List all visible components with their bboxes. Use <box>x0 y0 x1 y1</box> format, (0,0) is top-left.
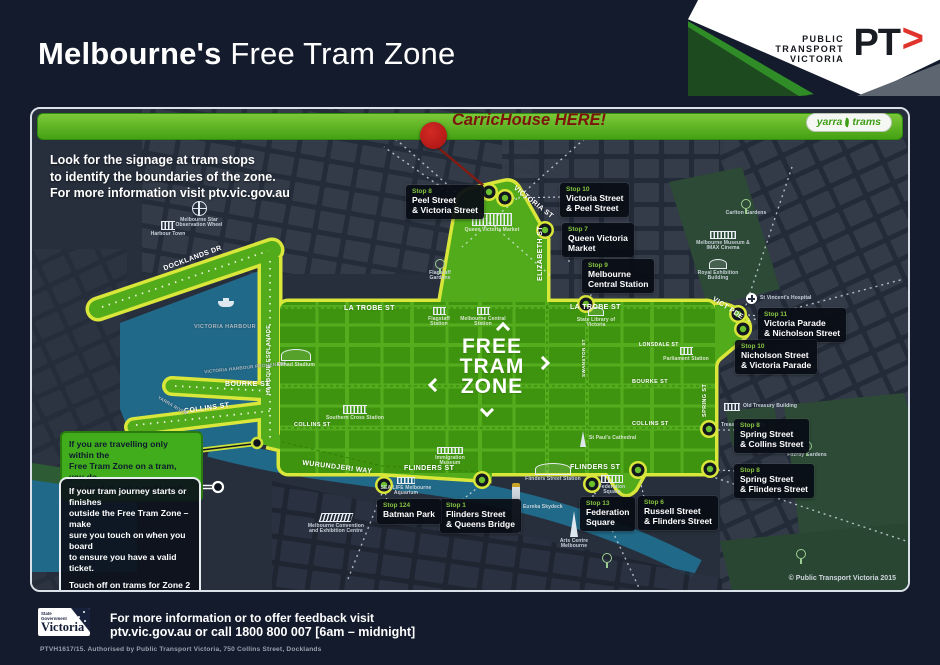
landmark-southern-cross: Southern Cross Station <box>324 405 386 421</box>
map-copyright: © Public Transport Victoria 2015 <box>789 575 896 582</box>
emblem-free: FREE <box>440 337 544 357</box>
stop-label-peel-victoria: Stop 8Peel Street& Victoria Street <box>406 185 484 219</box>
trams-text: trams <box>852 116 881 128</box>
landmark-st-vincents: St Vincent's Hospital <box>746 293 816 304</box>
landmark-melbourne-museum: Melbourne Museum & IMAX Cinema <box>692 231 754 252</box>
yarra-text: yarra <box>817 116 843 128</box>
stop-label-federation-square: Stop 13FederationSquare <box>580 497 635 531</box>
landmark-parliament-station: Parliament Station <box>662 347 710 362</box>
label-victoria-harbour: VICTORIA HARBOUR <box>194 324 256 330</box>
stadium-icon <box>281 349 311 361</box>
landmark-state-library: State Library of Victoria <box>570 307 622 329</box>
tree-icon <box>741 199 751 209</box>
landmark-royal-exhibition: Royal Exhibition Building <box>688 259 748 282</box>
landmark-sealife: SEA LIFE Melbourne Aquarium <box>378 477 434 497</box>
landmark-old-treasury: Old Treasury Building <box>724 403 802 411</box>
stop-label-nicholson-victoria: Stop 10Nicholson Street& Victoria Parade <box>735 340 817 374</box>
landmark-federation-square: Federation Square <box>590 475 634 496</box>
aquarium-icon <box>397 477 415 484</box>
poster-page: Melbourne's Free Tram Zone PUBLIC TRANSP… <box>0 0 940 665</box>
landmark-carlton-gardens: Carlton Gardens <box>720 199 772 216</box>
landmark-flagstaff-gardens: Flagstaff Gardens <box>418 259 462 282</box>
ptv-wordmark: PUBLIC TRANSPORT VICTORIA <box>775 34 844 64</box>
hospital-cross-icon <box>746 293 757 304</box>
landmark-st-pauls: St Paul's Cathedral <box>580 431 644 447</box>
ptv-word-victoria: VICTORIA <box>775 54 844 64</box>
stop-label-flinders-queens: Stop 1Flinders Street& Queens Bridge <box>440 499 521 533</box>
ptv-word-public: PUBLIC <box>775 34 844 44</box>
ptv-pt-logo: PT <box>853 22 900 65</box>
footer-contact-line: ptv.vic.gov.au or call 1800 800 007 [6am… <box>110 625 415 639</box>
building-icon <box>724 403 740 411</box>
page-title: Melbourne's Free Tram Zone <box>38 36 455 72</box>
note-line-1: Look for the signage at tram stops <box>50 152 290 169</box>
footer-info-line: For more information or to offer feedbac… <box>110 611 374 625</box>
ptv-logo-block: PUBLIC TRANSPORT VICTORIA PT > <box>688 0 940 96</box>
street-collins-mid: COLLINS ST <box>294 422 331 428</box>
street-elizabeth-st: ELIZABETH ST <box>537 226 544 281</box>
ferris-wheel-icon <box>192 201 207 216</box>
cathedral-icon <box>580 431 586 447</box>
stop-label-melbourne-central: Stop 9MelbourneCentral Station <box>582 259 654 293</box>
stop-label-victoria-nicholson: Stop 11Victoria Parade& Nicholson Street <box>758 308 846 342</box>
park-tree-south <box>602 553 612 563</box>
title-light: Free Tram Zone <box>222 36 456 71</box>
ptv-chevron-icon: > <box>902 17 924 62</box>
fed-square-icon <box>601 475 623 483</box>
exhibition-icon <box>709 259 727 269</box>
touch-on-paragraph: If your tram journey starts or finishes … <box>69 486 191 574</box>
museum-icon <box>710 231 736 239</box>
emblem-zone: ZONE <box>440 377 544 397</box>
stop-label-victoria-peel: Stop 10Victoria Street& Peel Street <box>560 183 629 217</box>
station-icon <box>477 307 490 315</box>
emblem-tram: TRAM <box>440 357 544 377</box>
library-icon <box>588 307 604 316</box>
museum-icon <box>437 447 463 454</box>
note-line-2: to identify the boundaries of the zone. <box>50 169 290 186</box>
tree-icon <box>602 553 612 563</box>
stop-label-spring-flinders: Stop 8Spring Street& Flinders Street <box>734 464 814 498</box>
landmark-flagstaff-station: Flagstaff Station <box>420 307 458 328</box>
landmark-flinders-station: Flinders Street Station <box>524 463 582 482</box>
touch-off-paragraph: Touch off on trams for Zone 2 only trips… <box>69 580 191 592</box>
free-tram-zone-emblem: FREE TRAM ZONE <box>440 337 544 397</box>
logo-victoria: Victoria <box>41 620 84 635</box>
convention-centre-icon <box>319 513 354 522</box>
stop-label-russell-flinders: Stop 6Russell Street& Flinders Street <box>638 496 718 530</box>
carrichouse-label: CarricHouse HERE! <box>452 111 606 130</box>
station-icon <box>680 347 693 355</box>
station-icon <box>343 405 367 414</box>
stop-label-spring-collins: Stop 8Spring Street& Collins Street <box>734 419 809 453</box>
victoria-government-logo: State Government Victoria <box>38 608 90 636</box>
touch-on-infobox: If your tram journey starts or finishes … <box>59 477 201 592</box>
street-spring-st: SPRING ST <box>702 384 708 417</box>
harbour-ship <box>218 301 234 307</box>
tree-icon <box>435 259 445 269</box>
stop-label-batman-park: Stop 124Batman Park <box>377 499 441 524</box>
footer-fine-print: PTVH1617/15. Authorised by Public Transp… <box>40 646 322 653</box>
note-line-3: For more information visit ptv.vic.gov.a… <box>50 185 290 202</box>
ship-icon <box>218 301 234 307</box>
carrichouse-marker-icon <box>420 122 447 149</box>
ptv-word-transport: TRANSPORT <box>775 44 844 54</box>
station-icon <box>433 307 446 315</box>
landmark-immigration-museum: Immigration Museum <box>424 447 476 467</box>
landmark-etihad-stadium: Etihad Stadium <box>266 349 326 368</box>
logo-state-government: State Government <box>41 611 63 621</box>
spire-icon <box>570 511 578 537</box>
street-bourke-w: BOURKE ST <box>225 381 270 388</box>
street-collins-e: COLLINS ST <box>632 421 669 427</box>
stop-label-qvm: Stop 7Queen VictoriaMarket <box>562 223 634 257</box>
street-bourke-e: BOURKE ST <box>632 379 668 385</box>
street-la-trobe-w: LA TROBE ST <box>344 305 395 312</box>
landmark-melbourne-central: Melbourne Central Station <box>460 307 506 328</box>
tree-icon <box>796 549 806 559</box>
yarra-trams-logo: yarra trams <box>806 113 892 132</box>
park-tree-southeast <box>796 549 806 559</box>
map-panel: CarricHouse HERE! yarra trams Look for t… <box>30 107 910 592</box>
landmark-melbourne-star: Melbourne Star Observation Wheel <box>170 201 228 229</box>
street-swanston-st: SWANSTON ST <box>581 339 586 377</box>
landmark-mcec: Melbourne Convention and Exhibition Cent… <box>304 513 368 535</box>
yarra-leaf-icon <box>844 117 850 127</box>
zone-note: Look for the signage at tram stops to id… <box>50 152 290 202</box>
station-dome-icon <box>535 463 571 475</box>
title-bold: Melbourne's <box>38 36 222 71</box>
